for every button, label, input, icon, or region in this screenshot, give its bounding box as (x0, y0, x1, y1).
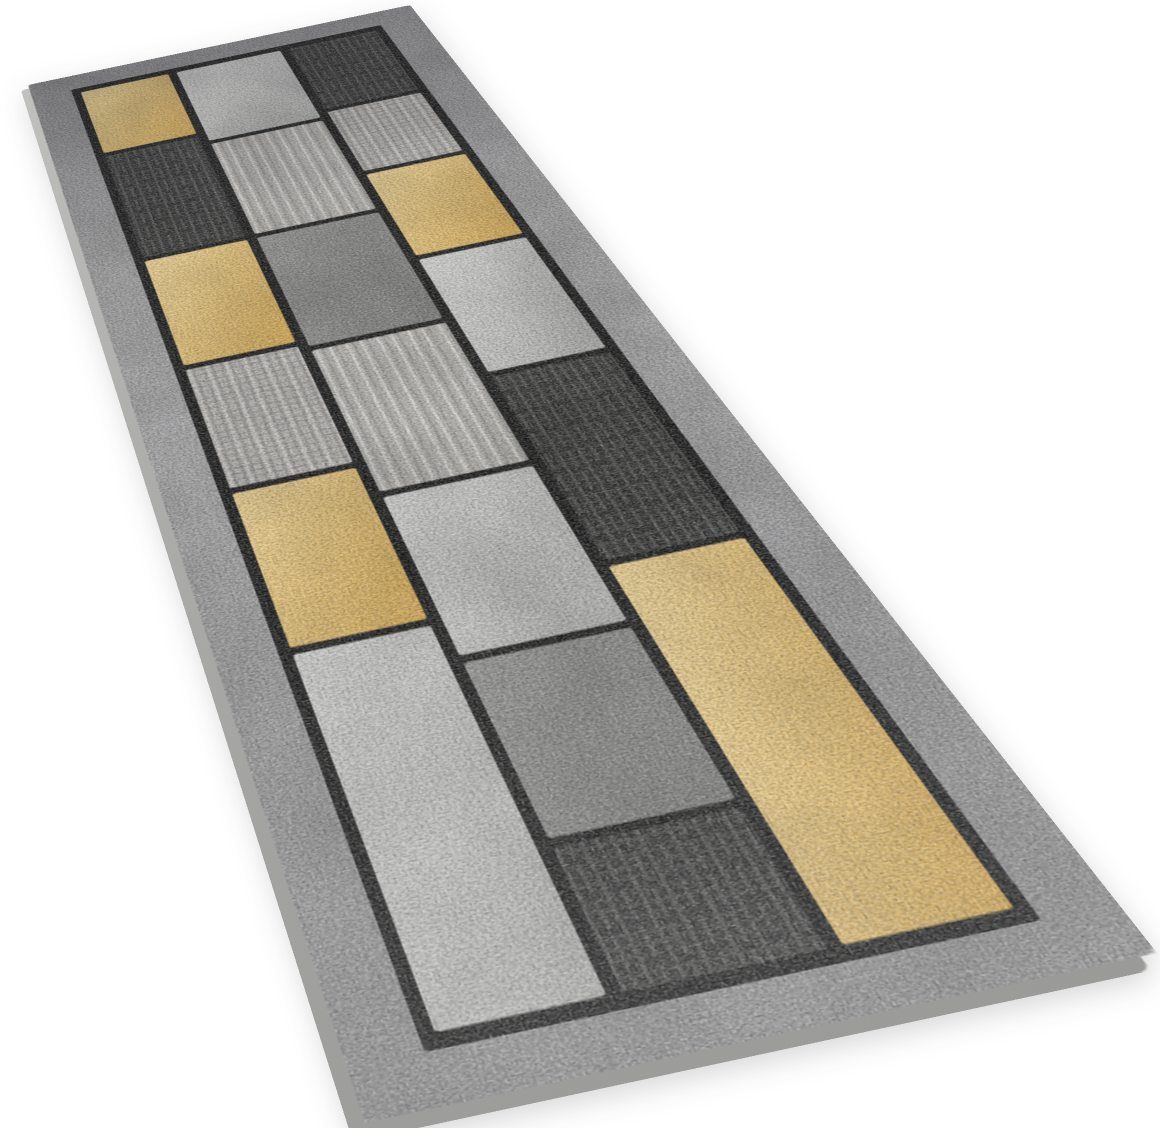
rug-top-surface (28, 5, 1157, 1123)
rug-shadow (0, 0, 1160, 1128)
rug (28, 5, 1157, 1123)
product-photo (0, 0, 1160, 1128)
lighting-gradient (28, 5, 1157, 1123)
